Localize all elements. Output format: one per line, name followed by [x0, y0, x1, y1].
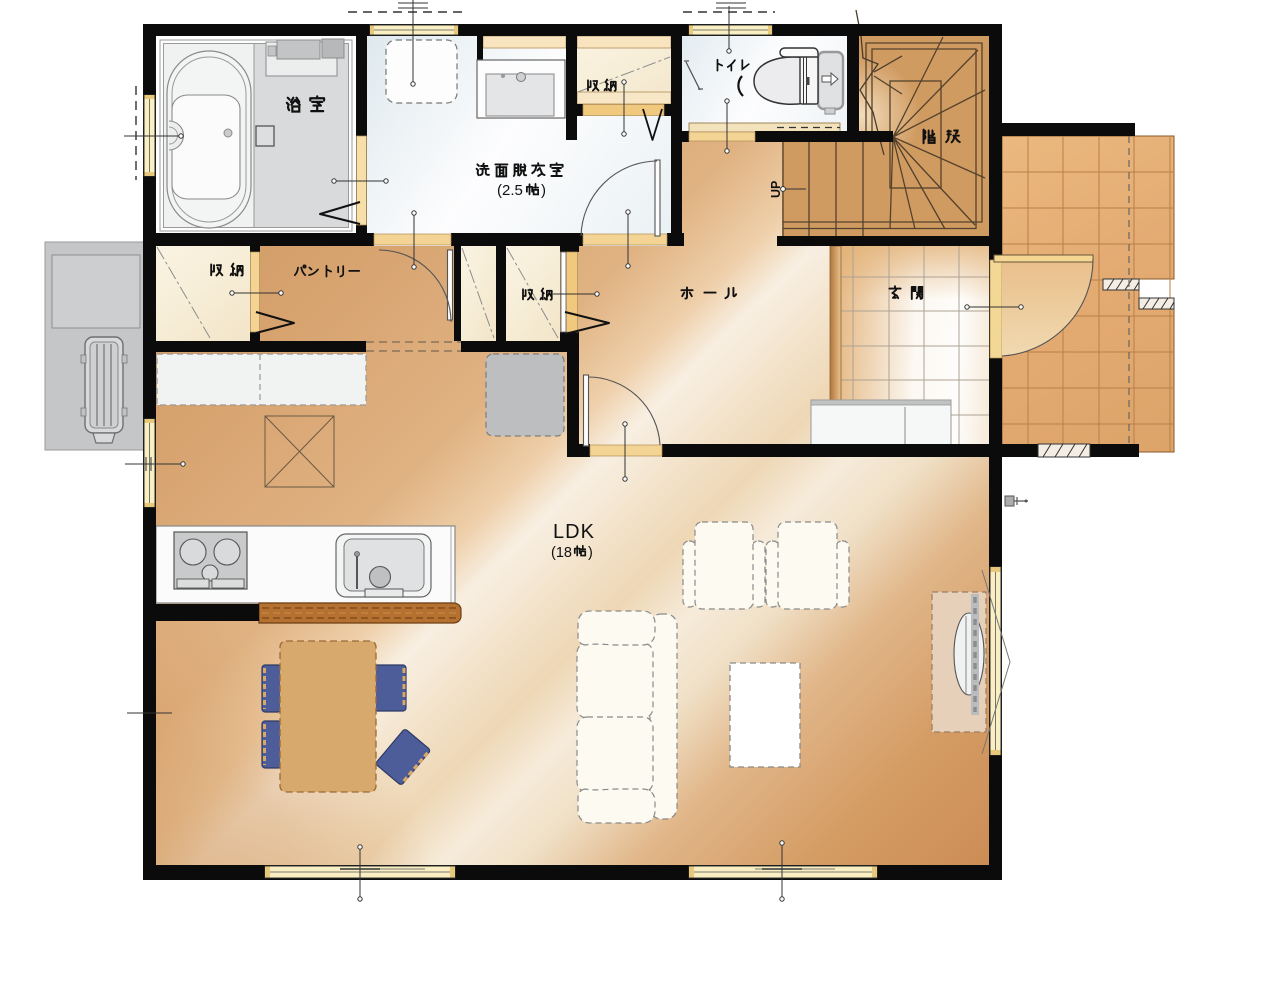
svg-text:): ): [588, 545, 593, 561]
svg-text:): ): [541, 182, 546, 199]
svg-text:UP: UP: [769, 181, 783, 198]
svg-text:(18: (18: [551, 545, 572, 561]
svg-text:LDK: LDK: [553, 521, 595, 543]
svg-text:(2.5: (2.5: [497, 182, 523, 199]
